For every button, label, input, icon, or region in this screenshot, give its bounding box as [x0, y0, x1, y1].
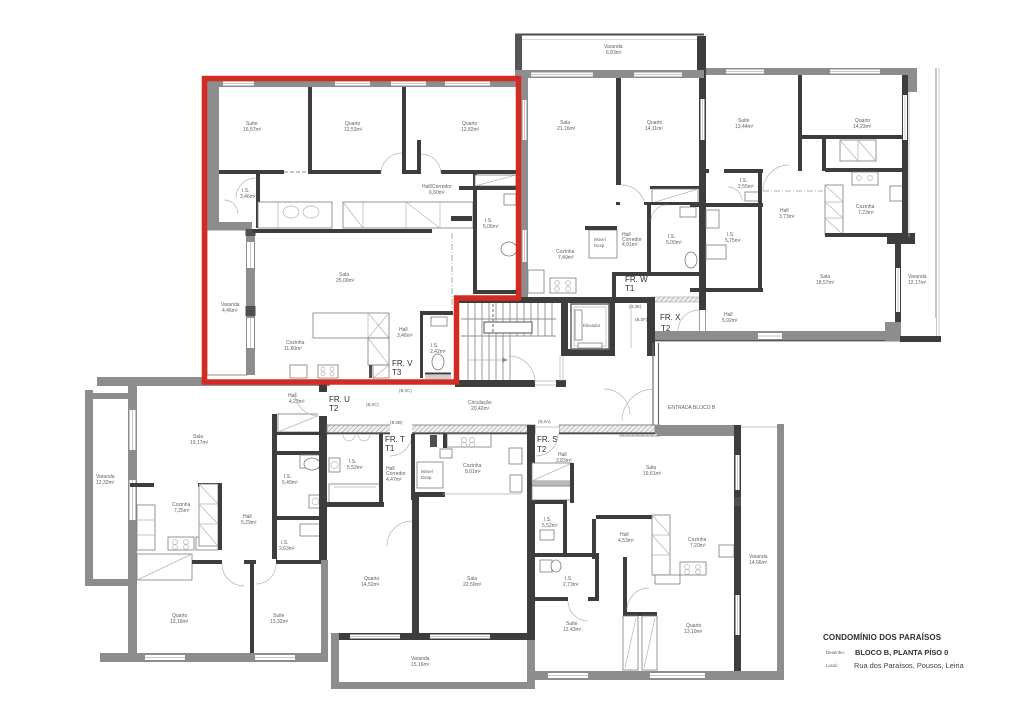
svg-text:(B,0F): (B,0F)	[635, 317, 648, 322]
svg-text:13,10m²: 13,10m²	[684, 629, 703, 635]
svg-text:13,44m²: 13,44m²	[735, 124, 754, 130]
svg-text:(B,0C): (B,0C)	[366, 402, 379, 407]
svg-text:25,00m²: 25,00m²	[336, 278, 355, 284]
svg-text:Local:: Local:	[826, 663, 838, 668]
svg-text:13,32m²: 13,32m²	[270, 619, 289, 625]
svg-text:(B,0A): (B,0A)	[538, 419, 551, 424]
svg-text:(B,0B): (B,0B)	[390, 420, 403, 425]
svg-text:4,46m²: 4,46m²	[222, 308, 238, 314]
svg-text:5,92m²: 5,92m²	[722, 318, 738, 324]
svg-text:T3: T3	[392, 368, 402, 377]
svg-text:12,43m²: 12,43m²	[563, 627, 582, 633]
svg-text:Desenho:: Desenho:	[826, 650, 845, 655]
svg-text:7,49m²: 7,49m²	[558, 255, 574, 261]
svg-text:2,55m²: 2,55m²	[738, 184, 754, 190]
svg-text:19,17m²: 19,17m²	[190, 440, 209, 446]
svg-text:4,91m²: 4,91m²	[622, 242, 638, 248]
svg-text:7,25m²: 7,25m²	[174, 508, 190, 514]
svg-text:18,57m²: 18,57m²	[816, 280, 835, 286]
svg-text:16,57m²: 16,57m²	[243, 127, 262, 133]
svg-text:CONDOMÍNIO DOS PARAÍSOS: CONDOMÍNIO DOS PARAÍSOS	[823, 633, 942, 642]
svg-text:14,66m²: 14,66m²	[749, 560, 768, 566]
svg-text:FR. U: FR. U	[329, 395, 350, 404]
svg-text:Rua dos Paraísos, Pousos, Leir: Rua dos Paraísos, Pousos, Leiria	[854, 661, 965, 670]
svg-text:14,23m²: 14,23m²	[853, 124, 872, 130]
svg-text:T2: T2	[537, 445, 547, 454]
svg-text:5,52m²: 5,52m²	[347, 465, 363, 471]
svg-text:T2: T2	[329, 404, 339, 413]
svg-text:FR. W: FR. W	[625, 275, 648, 284]
svg-text:14,11m²: 14,11m²	[645, 126, 663, 132]
svg-text:4,47m²: 4,47m²	[386, 477, 402, 483]
svg-text:T1: T1	[625, 284, 635, 293]
svg-text:15,16m²: 15,16m²	[411, 662, 430, 668]
svg-text:14,52m²: 14,52m²	[361, 582, 380, 588]
svg-text:Desp.: Desp.	[421, 475, 432, 480]
svg-text:12,17m²: 12,17m²	[908, 280, 927, 286]
svg-text:12,32m²: 12,32m²	[96, 480, 115, 486]
svg-text:13,16m²: 13,16m²	[170, 619, 189, 625]
svg-text:Desp.: Desp.	[594, 243, 605, 248]
svg-text:Móvel: Móvel	[421, 469, 433, 474]
svg-text:19,61m²: 19,61m²	[643, 471, 662, 477]
svg-text:ENTRADA BLOCO B: ENTRADA BLOCO B	[668, 405, 716, 411]
svg-text:3,73m²: 3,73m²	[779, 214, 795, 220]
svg-text:3,46m²: 3,46m²	[240, 194, 256, 200]
svg-text:8,01m²: 8,01m²	[465, 469, 481, 475]
svg-text:2,63m²: 2,63m²	[279, 546, 295, 552]
svg-text:11,60m²: 11,60m²	[284, 346, 302, 352]
svg-text:5,52m²: 5,52m²	[542, 523, 558, 529]
svg-text:12,53m²: 12,53m²	[344, 127, 363, 133]
svg-text:FR. S: FR. S	[537, 435, 557, 444]
svg-text:T1: T1	[385, 444, 395, 453]
svg-text:5,06m²: 5,06m²	[483, 224, 499, 230]
svg-text:2,73m²: 2,73m²	[563, 582, 579, 588]
svg-text:FR. T: FR. T	[385, 435, 405, 444]
svg-text:21,16m²: 21,16m²	[557, 126, 576, 132]
svg-text:3,46m²: 3,46m²	[397, 333, 413, 339]
svg-text:FR. V: FR. V	[392, 359, 413, 368]
svg-text:4,53m²: 4,53m²	[618, 538, 634, 544]
svg-text:5,49m²: 5,49m²	[282, 480, 298, 486]
svg-text:7,23m²: 7,23m²	[858, 210, 874, 216]
svg-text:Móvel: Móvel	[594, 237, 606, 242]
svg-text:Elevador: Elevador	[583, 323, 601, 328]
svg-text:6,83m²: 6,83m²	[606, 50, 622, 56]
svg-text:7,20m²: 7,20m²	[690, 543, 706, 549]
svg-text:12,82m²: 12,82m²	[461, 127, 480, 133]
svg-text:6,60m²: 6,60m²	[429, 190, 445, 196]
svg-text:(B,0C): (B,0C)	[399, 388, 412, 393]
svg-text:5,00m²: 5,00m²	[666, 240, 682, 246]
svg-text:T2: T2	[661, 324, 671, 333]
svg-text:22,50m²: 22,50m²	[463, 582, 482, 588]
svg-text:20,42m²: 20,42m²	[471, 406, 490, 412]
svg-text:BLOCO B, PLANTA PÍSO 0: BLOCO B, PLANTA PÍSO 0	[855, 648, 948, 657]
svg-text:FR. X: FR. X	[660, 313, 681, 322]
svg-text:5,29m²: 5,29m²	[241, 520, 257, 526]
svg-text:5,75m²: 5,75m²	[725, 238, 741, 244]
